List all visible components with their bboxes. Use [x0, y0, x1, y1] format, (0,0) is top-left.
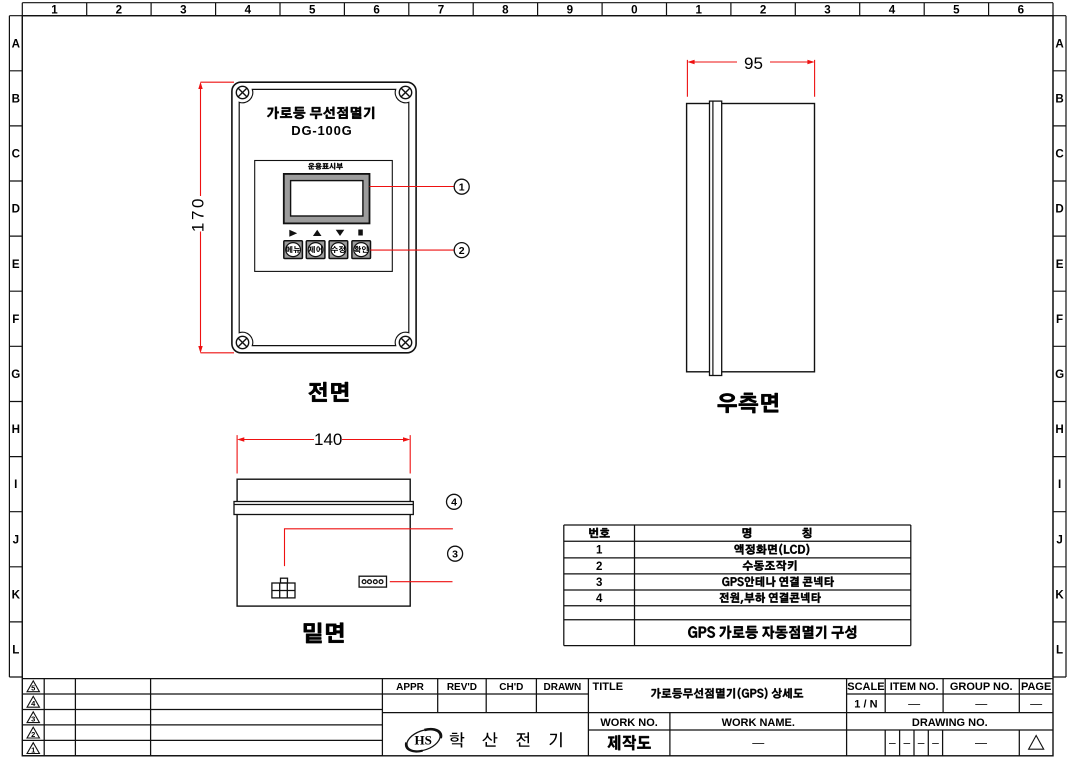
svg-text:4: 4 [451, 497, 457, 509]
svg-text:3: 3 [596, 577, 602, 589]
svg-text:8: 8 [502, 3, 509, 16]
svg-text:D: D [1055, 203, 1063, 216]
svg-text:GROUP NO.: GROUP NO. [950, 681, 1013, 693]
svg-text:5: 5 [309, 3, 316, 16]
svg-text:L: L [1056, 644, 1063, 657]
svg-text:—: — [908, 697, 920, 711]
svg-text:F: F [1056, 313, 1063, 326]
svg-text:G: G [11, 368, 20, 381]
svg-text:170: 170 [189, 196, 208, 232]
svg-text:CH'D: CH'D [499, 682, 523, 693]
svg-text:1: 1 [31, 745, 35, 754]
svg-text:2: 2 [596, 561, 602, 573]
svg-text:SCALE: SCALE [847, 681, 884, 693]
svg-text:APPR: APPR [396, 682, 425, 693]
svg-text:4: 4 [596, 593, 603, 605]
svg-text:6: 6 [373, 3, 380, 16]
svg-text:–: – [903, 736, 910, 750]
svg-text:H: H [1055, 423, 1063, 436]
svg-text:I: I [1058, 478, 1061, 491]
svg-text:5: 5 [31, 684, 35, 693]
svg-text:—: — [975, 697, 987, 711]
svg-text:—: — [975, 736, 987, 750]
svg-text:DRAWING NO.: DRAWING NO. [912, 717, 988, 729]
svg-text:TITLE: TITLE [593, 681, 624, 693]
svg-text:HS: HS [415, 733, 432, 748]
svg-text:6: 6 [1018, 3, 1025, 16]
svg-text:H: H [12, 423, 20, 436]
svg-text:WORK NAME.: WORK NAME. [722, 717, 795, 729]
svg-text:K: K [12, 588, 21, 601]
svg-text:I: I [14, 478, 17, 491]
svg-text:2: 2 [31, 730, 35, 739]
svg-text:C: C [1055, 148, 1064, 161]
svg-text:4: 4 [245, 3, 252, 16]
svg-text:D: D [12, 203, 20, 216]
svg-text:–: – [918, 736, 925, 750]
svg-text:E: E [1056, 258, 1064, 271]
svg-text:0: 0 [631, 3, 637, 16]
svg-text:—: — [752, 736, 764, 750]
svg-text:5: 5 [953, 3, 960, 16]
svg-text:9: 9 [567, 3, 574, 16]
svg-text:J: J [13, 533, 19, 546]
svg-text:C: C [12, 148, 21, 161]
svg-text:3: 3 [31, 714, 35, 723]
svg-text:–: – [932, 736, 939, 750]
svg-text:–: – [889, 736, 896, 750]
svg-text:—: — [1030, 697, 1042, 711]
svg-text:B: B [1055, 93, 1063, 106]
svg-text:PAGE: PAGE [1021, 681, 1051, 693]
svg-text:3: 3 [824, 3, 831, 16]
svg-text:WORK NO.: WORK NO. [600, 717, 657, 729]
svg-text:7: 7 [438, 3, 444, 16]
svg-text:L: L [12, 644, 19, 657]
svg-text:3: 3 [180, 3, 187, 16]
svg-text:140: 140 [314, 430, 342, 449]
svg-text:A: A [12, 37, 21, 50]
svg-text:A: A [1055, 37, 1064, 50]
svg-text:G: G [1055, 368, 1064, 381]
svg-text:3: 3 [452, 549, 458, 561]
svg-text:E: E [12, 258, 20, 271]
svg-text:REV'D: REV'D [447, 682, 477, 693]
svg-text:ITEM NO.: ITEM NO. [890, 681, 939, 693]
svg-text:1 / N: 1 / N [854, 699, 877, 711]
svg-text:4: 4 [889, 3, 896, 16]
svg-text:1: 1 [51, 3, 58, 16]
svg-text:B: B [12, 93, 20, 106]
svg-text:K: K [1055, 588, 1064, 601]
svg-text:DG-100G: DG-100G [291, 123, 352, 138]
svg-text:2: 2 [116, 3, 122, 16]
svg-text:1: 1 [695, 3, 702, 16]
svg-text:F: F [12, 313, 19, 326]
svg-text:DRAWN: DRAWN [544, 682, 582, 693]
svg-text:2: 2 [760, 3, 766, 16]
svg-text:2: 2 [459, 245, 465, 257]
svg-text:1: 1 [459, 182, 465, 194]
svg-text:J: J [1056, 533, 1062, 546]
svg-text:1: 1 [596, 545, 603, 557]
svg-text:95: 95 [744, 54, 763, 73]
